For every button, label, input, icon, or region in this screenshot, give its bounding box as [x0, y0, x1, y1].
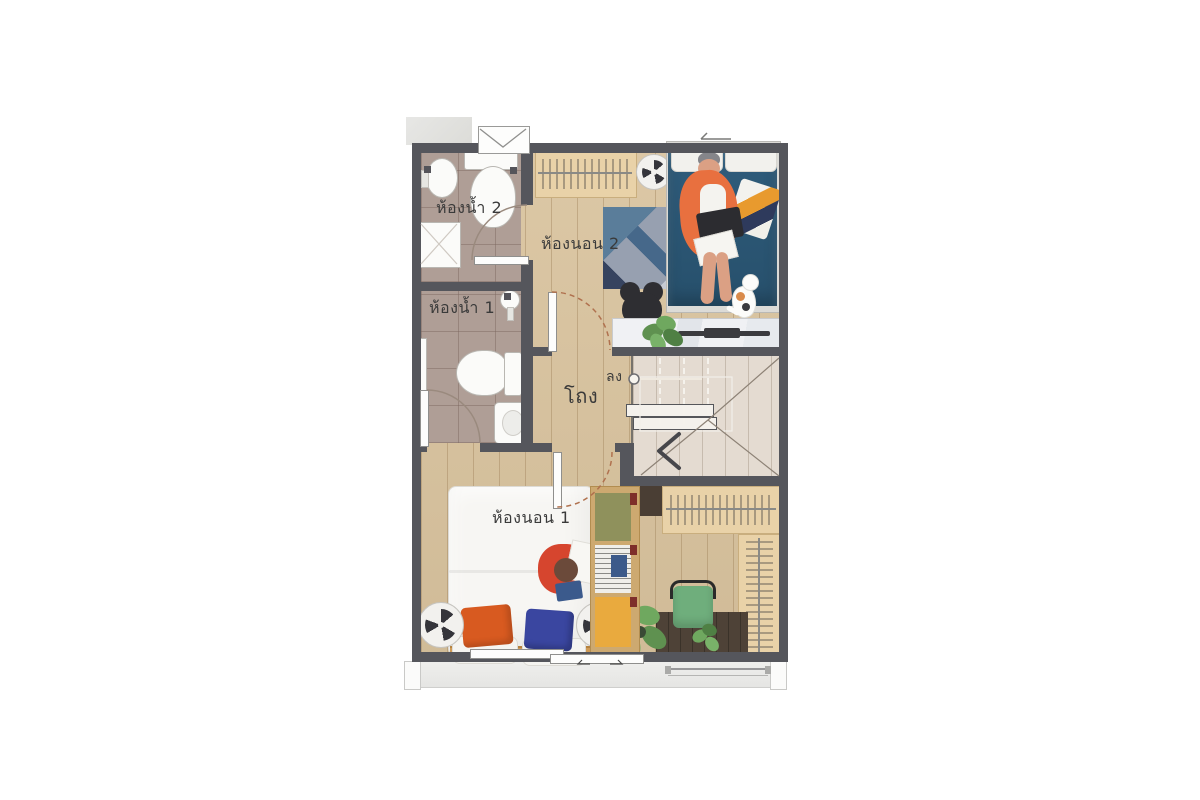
wall-top — [412, 143, 788, 153]
toilet-bowl-bathroom1 — [456, 350, 508, 396]
room-label-bathroom-1: ห้องน้ำ 1 — [429, 296, 495, 321]
shower-handle-bathroom1 — [507, 307, 514, 321]
exterior-ledge — [406, 117, 472, 145]
sink-bathroom2 — [426, 158, 458, 198]
shelf-box-orange — [595, 597, 631, 647]
door-leaf-bedroom2 — [548, 292, 557, 352]
pillow-orange — [460, 604, 513, 648]
dog-spot-orange — [736, 292, 745, 301]
toilet-tank-bathroom1 — [504, 352, 522, 396]
balcony-column-right — [770, 661, 787, 690]
wall-fixture-1 — [424, 166, 431, 173]
rack-rod — [666, 508, 776, 510]
clothes-rack-horizontal — [662, 486, 780, 534]
stairs-direction-label: ลง — [606, 366, 622, 388]
wall-fixture-2 — [510, 167, 517, 174]
door-leaf-bathroom2 — [474, 256, 529, 265]
wardrobe-rack-bedroom2 — [535, 150, 637, 198]
wall-bedroom1-seg3 — [615, 443, 634, 452]
floor-plan: ห้องน้ำ 2 ห้องน้ำ 1 ห้องนอน 2 โถง ลง ห้อ… — [0, 0, 1200, 800]
room-label-hall: โถง — [564, 380, 598, 412]
balcony-railing — [668, 668, 768, 676]
room-label-bedroom-2: ห้องนอน 2 — [541, 232, 620, 257]
vent-line — [701, 133, 731, 139]
sliding-door-panel-2 — [550, 654, 644, 664]
leg-left — [700, 252, 717, 305]
shelf-box-olive — [595, 493, 631, 541]
wall-stub-bedroom1-right — [620, 452, 634, 486]
rack-rod — [758, 538, 760, 657]
wall-right — [779, 143, 788, 662]
wall-fixture-3 — [504, 293, 511, 300]
door-leaf-bathroom1 — [420, 390, 429, 447]
page: { "floor_plan": { "type": "residential-s… — [0, 0, 1200, 800]
head — [554, 558, 578, 582]
stair-railing-upper — [626, 404, 714, 417]
shelf-book-blue — [611, 555, 627, 577]
railing-post-left — [665, 666, 671, 674]
wall-between-bathrooms — [412, 282, 530, 291]
bedside-shelf-tower — [590, 486, 640, 654]
window-bathroom2 — [478, 126, 530, 154]
wall-stairs-bottom — [629, 476, 788, 486]
keyboard-pad — [704, 328, 740, 338]
dog-head — [742, 274, 759, 291]
shelf-chip-2 — [630, 545, 637, 555]
wardrobe-rod — [538, 172, 632, 174]
wall-bedroom2-bottom — [612, 347, 788, 356]
wall-bedroom1-seg2 — [480, 443, 552, 452]
tablet-blue — [555, 580, 583, 601]
pillow-blue — [524, 608, 575, 651]
shower-tray-bathroom2 — [419, 222, 461, 268]
room-label-bedroom-1: ห้องนอน 1 — [492, 506, 571, 531]
shelf-chip-3 — [630, 597, 637, 607]
room-label-bathroom-2: ห้องน้ำ 2 — [436, 196, 502, 221]
stair-railing-lower — [633, 417, 717, 430]
dog — [726, 272, 766, 322]
dog-spot-dark — [742, 303, 750, 311]
door-leaf-bedroom1 — [553, 452, 562, 509]
railing-post-right — [765, 666, 771, 674]
speaker-left — [418, 602, 464, 648]
balcony-column-left — [404, 661, 421, 690]
shelf-chip-1 — [630, 493, 637, 505]
